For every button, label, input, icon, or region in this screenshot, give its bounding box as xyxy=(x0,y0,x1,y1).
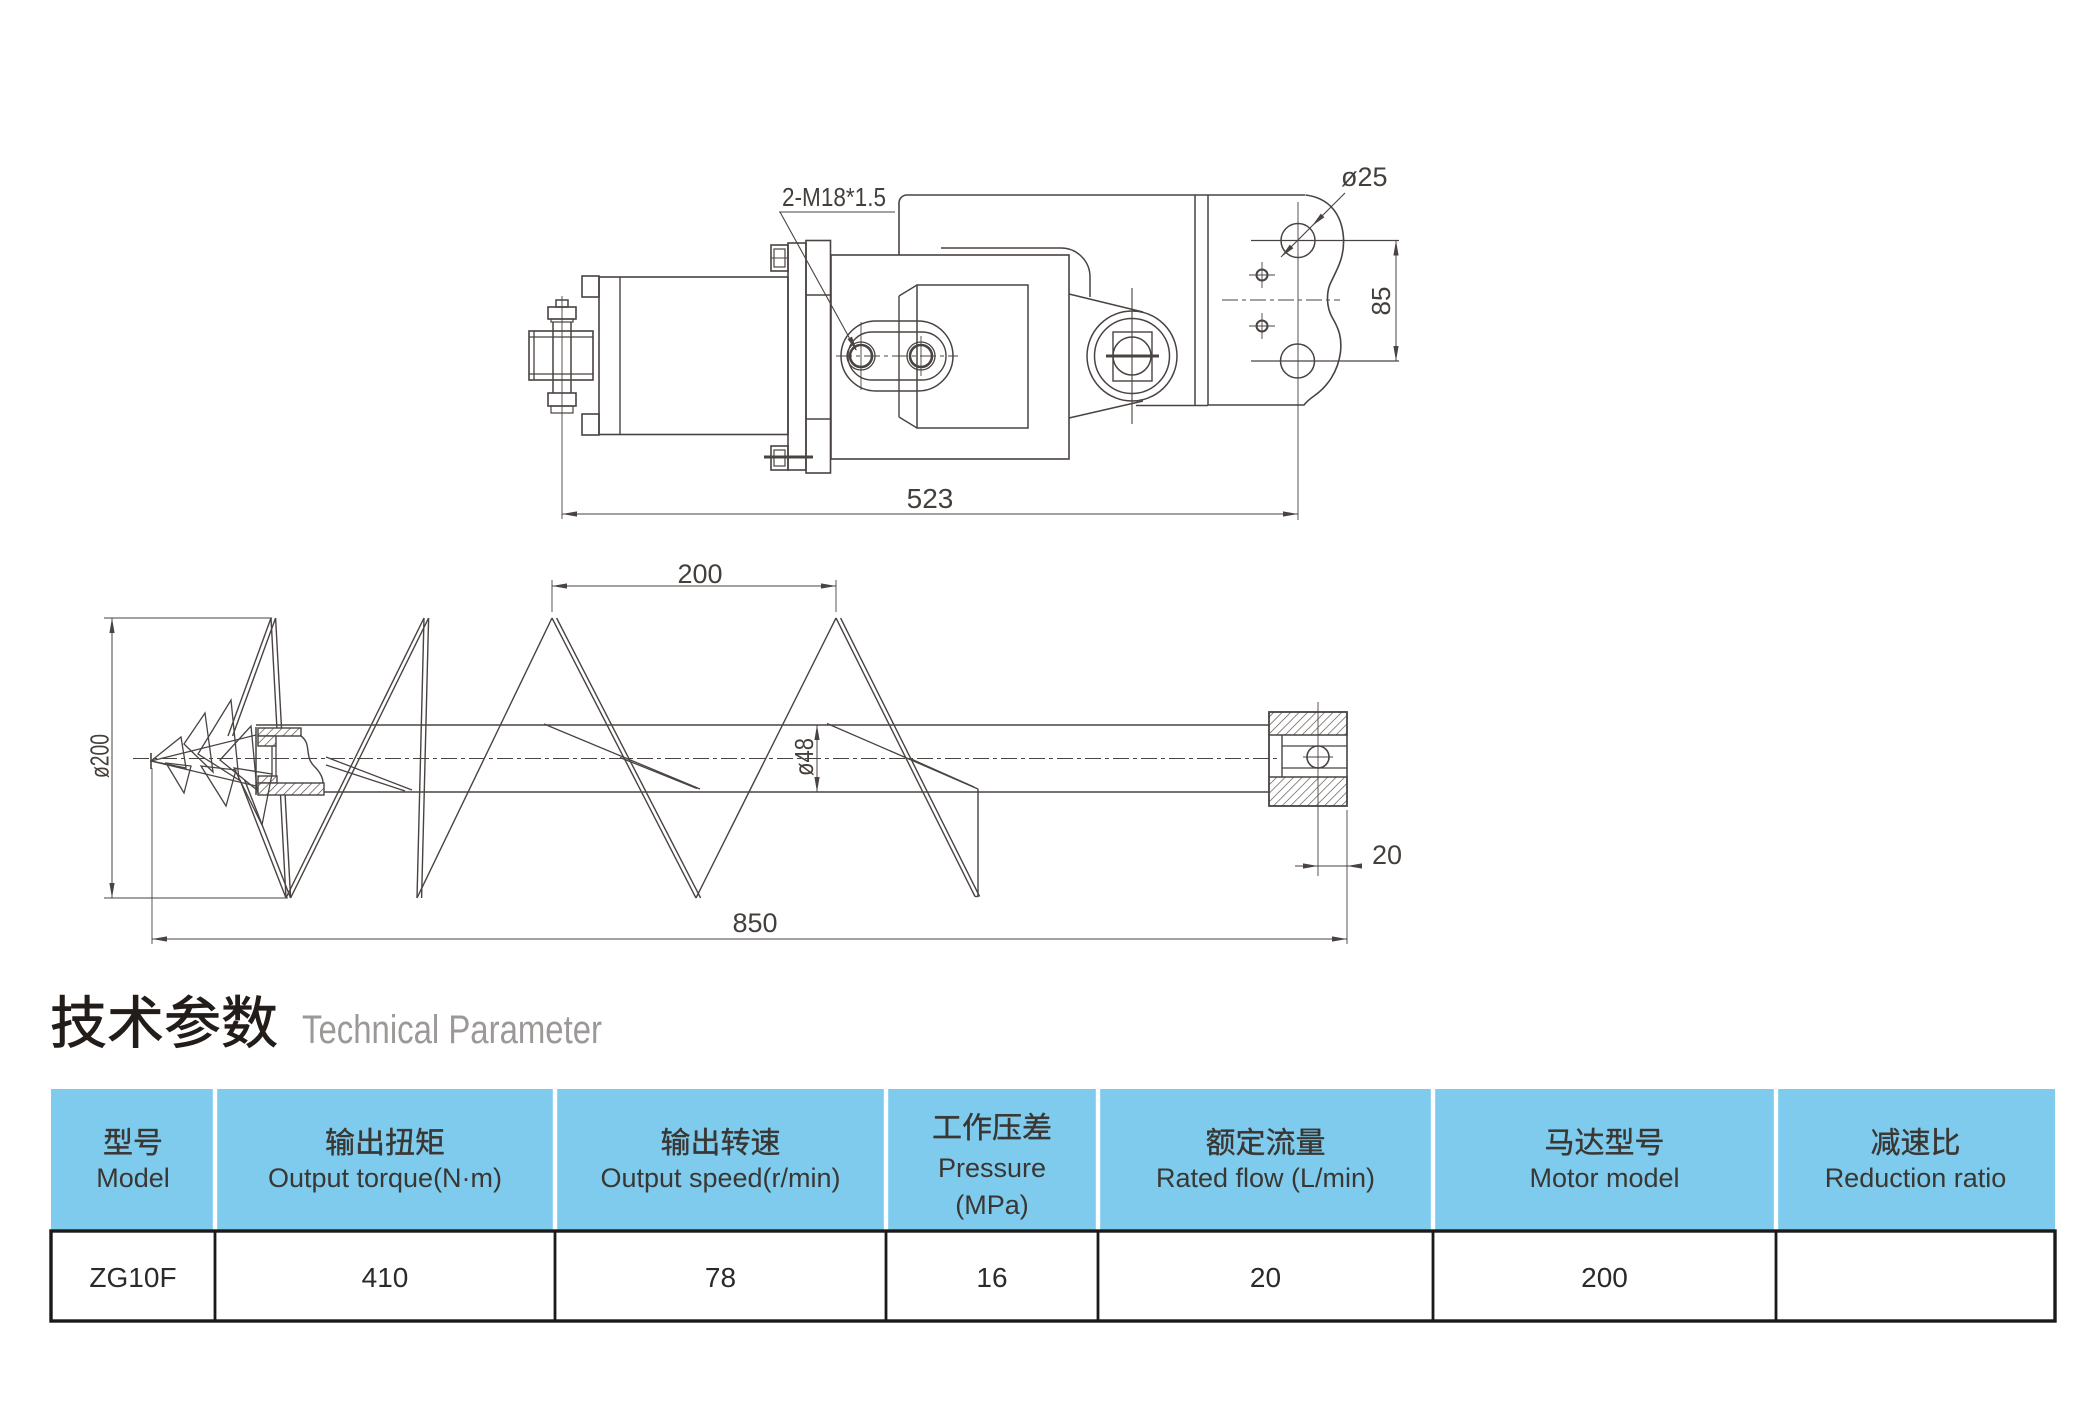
svg-text:85: 85 xyxy=(1366,287,1396,316)
svg-text:Technical Parameter: Technical Parameter xyxy=(302,1008,602,1052)
svg-text:Reduction ratio: Reduction ratio xyxy=(1825,1163,2007,1193)
svg-text:Pressure: Pressure xyxy=(938,1153,1046,1183)
svg-text:410: 410 xyxy=(362,1262,409,1293)
svg-text:Output speed(r/min): Output speed(r/min) xyxy=(600,1163,840,1193)
svg-text:ø48: ø48 xyxy=(789,738,819,776)
svg-text:ZG10F: ZG10F xyxy=(89,1262,176,1293)
svg-text:20: 20 xyxy=(1372,840,1402,870)
svg-text:200: 200 xyxy=(1581,1262,1628,1293)
svg-text:523: 523 xyxy=(907,483,954,514)
svg-text:16: 16 xyxy=(976,1262,1007,1293)
svg-text:2-M18*1.5: 2-M18*1.5 xyxy=(782,182,886,212)
svg-text:Rated flow (L/min): Rated flow (L/min) xyxy=(1156,1163,1375,1193)
svg-text:Output torque(N·m): Output torque(N·m) xyxy=(268,1163,502,1193)
svg-text:ø200: ø200 xyxy=(85,734,115,778)
svg-text:200: 200 xyxy=(677,559,722,589)
svg-text:20: 20 xyxy=(1250,1262,1281,1293)
svg-text:(MPa): (MPa) xyxy=(955,1190,1029,1220)
svg-text:78: 78 xyxy=(705,1262,736,1293)
svg-text:Motor model: Motor model xyxy=(1529,1163,1679,1193)
svg-text:850: 850 xyxy=(732,908,777,938)
svg-text:Model: Model xyxy=(96,1163,170,1193)
svg-text:ø25: ø25 xyxy=(1341,162,1388,192)
